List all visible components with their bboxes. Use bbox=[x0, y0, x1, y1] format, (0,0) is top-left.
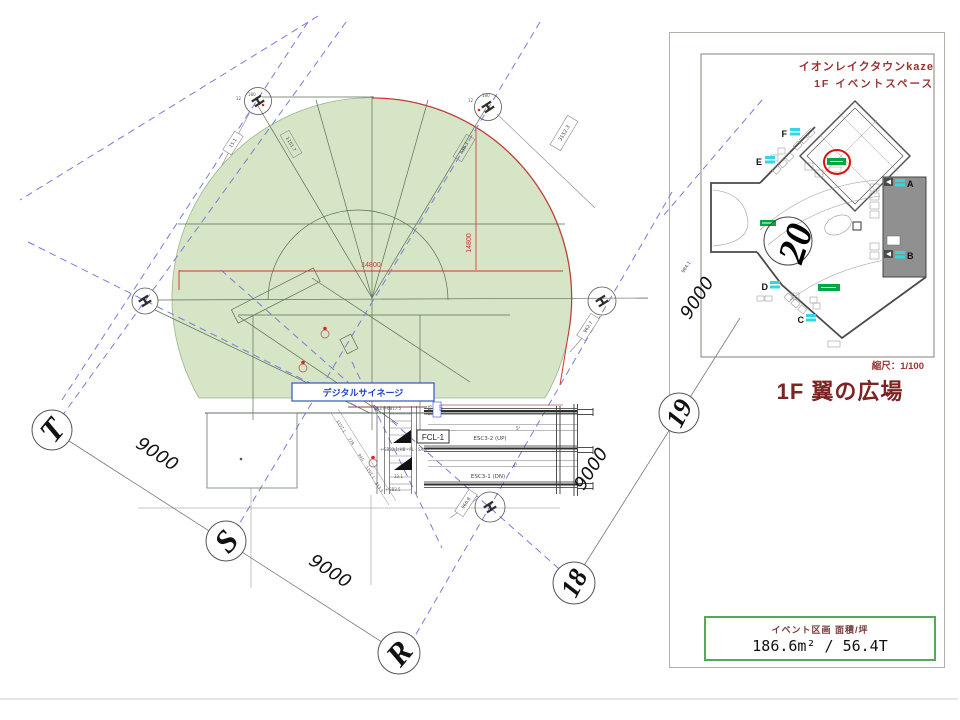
minimap: 20 F E A bbox=[701, 54, 934, 357]
deg-note-2: 4° bbox=[513, 463, 518, 468]
column-marker bbox=[588, 287, 616, 315]
minimap-title-line1: イオンレイクタウンkaze bbox=[728, 58, 934, 74]
svg-text:180: 180 bbox=[482, 93, 490, 98]
grid-bubble-18: 18 bbox=[553, 562, 595, 604]
mall-anchor-store bbox=[883, 177, 926, 277]
page-title: 1F 翼の広場 bbox=[748, 374, 932, 406]
esc-dn-label: ESC3-1 (DN) bbox=[471, 474, 505, 480]
svg-text:984.1: 984.1 bbox=[680, 260, 692, 274]
svg-text:B: B bbox=[907, 251, 914, 261]
svg-text:E: E bbox=[756, 157, 762, 167]
minimap-title-line2: 1F イベントスペース bbox=[728, 76, 934, 91]
column-marker bbox=[475, 492, 505, 522]
note-blue-tag: 115 bbox=[439, 404, 444, 412]
event-area-label: イベント区画 面積/坪 bbox=[706, 623, 934, 636]
grid-bubble-19: 19 bbox=[659, 393, 699, 433]
escalator-arrow-up bbox=[393, 430, 411, 443]
svg-text:A: A bbox=[907, 179, 914, 189]
event-area-value: 186.6m² / 56.4T bbox=[706, 637, 934, 655]
deg-note-1: 5° bbox=[516, 426, 521, 431]
dim-9000-sr: 9000 bbox=[305, 550, 355, 593]
dim-14800-v: 14800 bbox=[466, 233, 473, 253]
svg-text:12: 12 bbox=[236, 96, 242, 101]
note-331: 33.1 bbox=[394, 474, 403, 479]
svg-text:F: F bbox=[782, 129, 788, 139]
svg-text:180: 180 bbox=[248, 92, 256, 97]
fcl-label: FCL-1 bbox=[422, 433, 445, 442]
escalator-arrow-down bbox=[394, 457, 412, 470]
grid-bubbles: T S R 9000 9000 bbox=[32, 410, 420, 674]
svg-text:D: D bbox=[762, 282, 769, 292]
digital-signage: デジタルサイネージ bbox=[292, 383, 434, 401]
event-area-box: イベント区画 面積/坪 186.6m² / 56.4T bbox=[704, 616, 936, 661]
scale-label: 縮尺：1/100 bbox=[760, 358, 924, 372]
highlight-chip bbox=[760, 220, 776, 226]
escalator-block: FCL-1 ESC3-2 (UP) ESC3-1 (DN) 5° 4° 3K3.… bbox=[331, 402, 593, 505]
svg-text:779: 779 bbox=[347, 437, 356, 447]
drawing-sheet: 14800 14800 bbox=[0, 0, 960, 720]
grid-bubble-T: T bbox=[32, 410, 73, 450]
column-marker bbox=[132, 288, 158, 314]
svg-text:12: 12 bbox=[468, 98, 474, 103]
highlight-chip-selected bbox=[827, 158, 846, 165]
dim-9000-ts: 9000 bbox=[132, 433, 182, 476]
note-gb: +GB32.1(HB・FL・SA3) bbox=[380, 447, 428, 452]
grid-bubble-S: S bbox=[206, 521, 246, 561]
escalator-rails bbox=[424, 404, 593, 496]
note-top: 3K3.0-6B17.5 bbox=[374, 406, 402, 411]
minimap-title: イオンレイクタウンkaze 1F イベントスペース bbox=[728, 58, 934, 91]
note-sb: SB16 bbox=[427, 405, 432, 416]
svg-text:C: C bbox=[798, 315, 805, 325]
esc-up-label: ESC3-2 (UP) bbox=[473, 436, 506, 442]
highlight-chip bbox=[818, 284, 840, 291]
dim-14800-h: 14800 bbox=[361, 262, 381, 269]
signage-label: デジタルサイネージ bbox=[323, 387, 404, 398]
svg-text:813.5: 813.5 bbox=[374, 481, 385, 494]
svg-text:945: 945 bbox=[357, 453, 366, 463]
grid-bubble-R: R bbox=[378, 632, 420, 674]
